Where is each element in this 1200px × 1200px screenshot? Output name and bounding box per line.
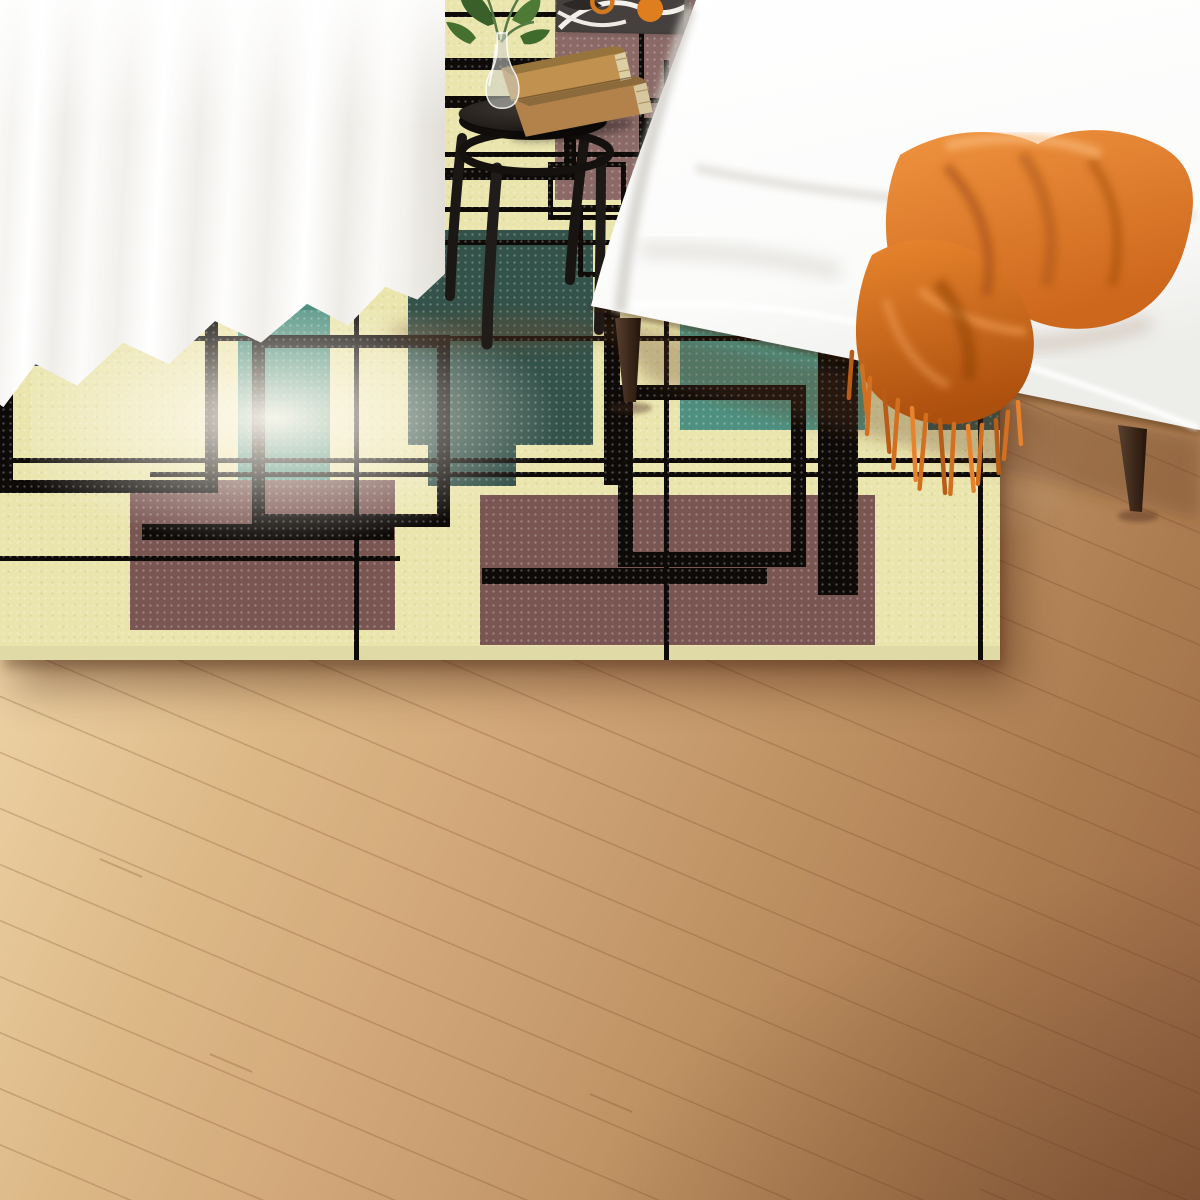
ivy-leaf bbox=[446, 22, 476, 44]
stool-leg bbox=[570, 142, 584, 280]
stool-shadow bbox=[388, 317, 612, 347]
fringe-strand bbox=[1018, 402, 1021, 444]
stacked-vintage-books bbox=[500, 43, 655, 147]
fringe-strand bbox=[849, 352, 852, 398]
fringe-strand bbox=[996, 420, 999, 473]
abstract-wall-art bbox=[556, 0, 690, 38]
glass-vase bbox=[486, 33, 519, 108]
fringe-strand bbox=[867, 378, 870, 434]
sofa-leg-shadow bbox=[608, 402, 652, 414]
sofa-leg-shadow bbox=[1118, 510, 1158, 522]
living-room-photo bbox=[0, 0, 1200, 1200]
sofa-leg bbox=[615, 318, 641, 402]
ivy-leaf bbox=[520, 29, 550, 44]
stool-leg bbox=[450, 138, 462, 296]
